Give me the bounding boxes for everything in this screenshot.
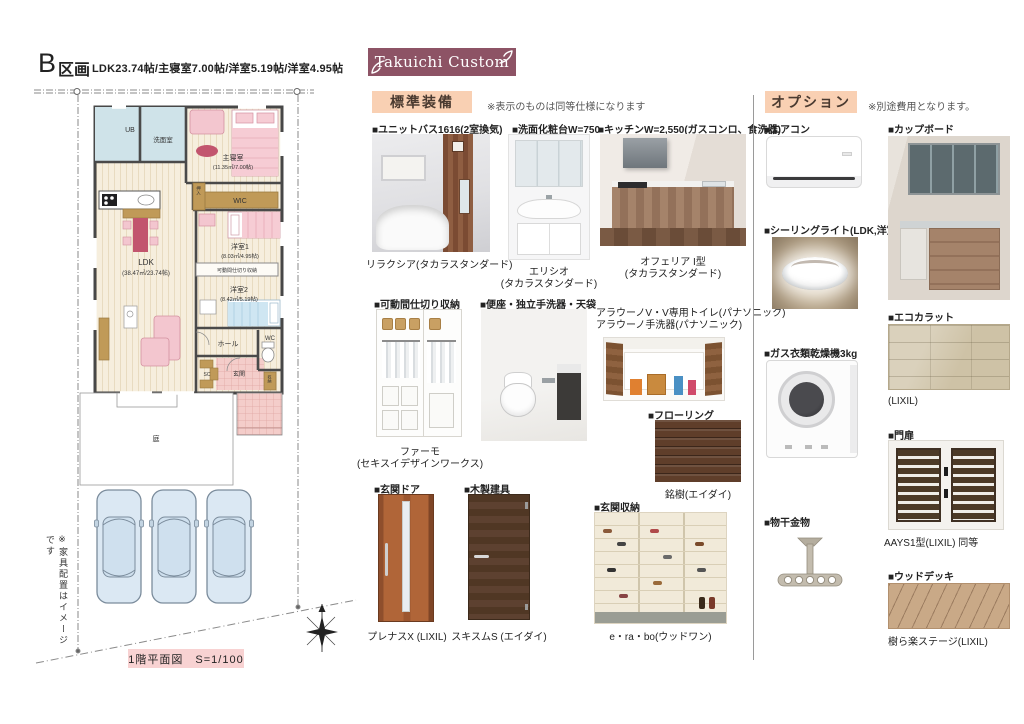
ceiling-light-photo bbox=[772, 237, 858, 309]
vanity-photo bbox=[508, 134, 590, 260]
standard-section-note: ※表示のものは同等仕様になります bbox=[487, 98, 645, 113]
partition-storage-caption2: (セキスイデザインワークス) bbox=[356, 455, 484, 470]
shoe-storage-photo bbox=[594, 512, 727, 624]
gas-dryer-title: ■ガス衣類乾燥機3kg bbox=[764, 345, 857, 360]
room-label-master: 主寝室 bbox=[223, 153, 244, 162]
banner-flourish-icon bbox=[496, 49, 514, 65]
wood-deck-title: ■ウッドデッキ bbox=[888, 568, 954, 583]
standard-section-header: 標準装備 bbox=[372, 91, 472, 113]
toilet-note2: アラウーノ手洗器(パナソニック) bbox=[596, 316, 742, 331]
section-divider bbox=[753, 95, 754, 660]
room-size-master: (11.35㎡/7.00帖) bbox=[213, 163, 253, 171]
ecocarat-caption: (LIXIL) bbox=[888, 396, 918, 407]
flooring-photo bbox=[655, 420, 741, 482]
garden-area: 庭 bbox=[80, 393, 233, 485]
laundry-hanger-title: ■物干金物 bbox=[764, 514, 810, 529]
options-section-note: ※別途費用となります。 bbox=[868, 98, 975, 113]
unit-bath-caption: リラクシア(タカラスタンダード) bbox=[366, 256, 496, 271]
tenbukuro-photo bbox=[603, 337, 725, 401]
plot-word: 区画 bbox=[58, 56, 90, 80]
porch bbox=[237, 393, 282, 435]
gate-caption: AAYS1型(LIXIL) 同等 bbox=[884, 534, 978, 549]
ecocarat-photo bbox=[888, 324, 1010, 390]
plot-letter: B bbox=[38, 48, 56, 79]
room-label-genkan: 玄関 bbox=[233, 370, 245, 378]
room-label-sc: SC bbox=[204, 372, 211, 378]
entrance-door-photo bbox=[378, 494, 434, 622]
room-label-shuno: 収納 bbox=[268, 374, 273, 384]
label-partition: 可動間仕切り収納 bbox=[217, 267, 257, 274]
room-label-oshiire: 押入 bbox=[196, 185, 202, 196]
room-size-ldk: (38.47㎡/23.74帖) bbox=[122, 269, 170, 277]
gas-dryer-photo bbox=[766, 360, 858, 458]
banner-flourish-icon bbox=[370, 59, 388, 75]
wood-deck-caption: 樹ら楽ステージ(LIXIL) bbox=[888, 633, 988, 648]
wood-door-photo bbox=[468, 494, 530, 620]
wood-door-caption: スキスムS (エイダイ) bbox=[444, 628, 554, 643]
kitchen-caption2: (タカラスタンダード) bbox=[600, 265, 746, 280]
aircon-title: ■エアコン bbox=[764, 121, 810, 136]
aircon-photo bbox=[766, 136, 862, 188]
gate-photo bbox=[888, 440, 1004, 530]
laundry-hanger-icon bbox=[770, 530, 850, 602]
plan-footer-label: 1階平面図 S=1/100 bbox=[128, 649, 244, 668]
laundry-hanger-photo bbox=[770, 530, 850, 602]
unit-bath-photo bbox=[372, 134, 490, 252]
floor-plan: 庭 bbox=[28, 80, 368, 680]
room-label-senmen: 洗面室 bbox=[153, 135, 173, 144]
brand-label: Takuichi Custom bbox=[375, 53, 510, 71]
compass-icon bbox=[306, 604, 338, 652]
options-section-header: オプション bbox=[765, 91, 857, 113]
ecocarat-title: ■エコカラット bbox=[888, 309, 954, 324]
plot-specs: LDK23.74帖/主寝室7.00帖/洋室5.19帖/洋室4.95帖 bbox=[92, 60, 343, 76]
wood-deck-photo bbox=[888, 583, 1010, 629]
ceiling-light-title: ■シーリングライト(LDK,洋室) bbox=[764, 222, 900, 237]
furniture-note: ※家具配置はイメージです bbox=[44, 535, 70, 655]
cupboard-title: ■カップボード bbox=[888, 121, 954, 136]
room-size-yoshitsu2: (8.42㎡/5.19帖) bbox=[220, 295, 258, 303]
toilet-photo bbox=[481, 309, 587, 441]
kitchen-photo bbox=[600, 134, 746, 246]
cupboard-photo bbox=[888, 136, 1010, 300]
partition-storage-photo bbox=[376, 309, 462, 437]
room-label-wic: WIC bbox=[233, 198, 247, 205]
room-label-wc: WC bbox=[265, 336, 276, 342]
brand-banner: Takuichi Custom bbox=[368, 48, 516, 76]
vanity-caption2: (タカラスタンダード) bbox=[494, 275, 604, 290]
brochure-page: B 区画 LDK23.74帖/主寝室7.00帖/洋室5.19帖/洋室4.95帖 … bbox=[0, 0, 1024, 724]
room-label-hall: ホール bbox=[218, 340, 239, 348]
garden-label: 庭 bbox=[153, 434, 160, 443]
flooring-caption: 銘樹(エイダイ) bbox=[648, 486, 748, 501]
room-label-yoshitsu1: 洋室1 bbox=[231, 242, 249, 251]
room-size-yoshitsu1: (8.03㎡/4.95帖) bbox=[221, 252, 259, 260]
room-label-yoshitsu2: 洋室2 bbox=[230, 285, 248, 294]
shoe-storage-caption: e・ra・bo(ウッドワン) bbox=[594, 628, 727, 643]
room-label-ub: UB bbox=[125, 127, 135, 134]
room-label-ldk: LDK bbox=[138, 258, 154, 267]
